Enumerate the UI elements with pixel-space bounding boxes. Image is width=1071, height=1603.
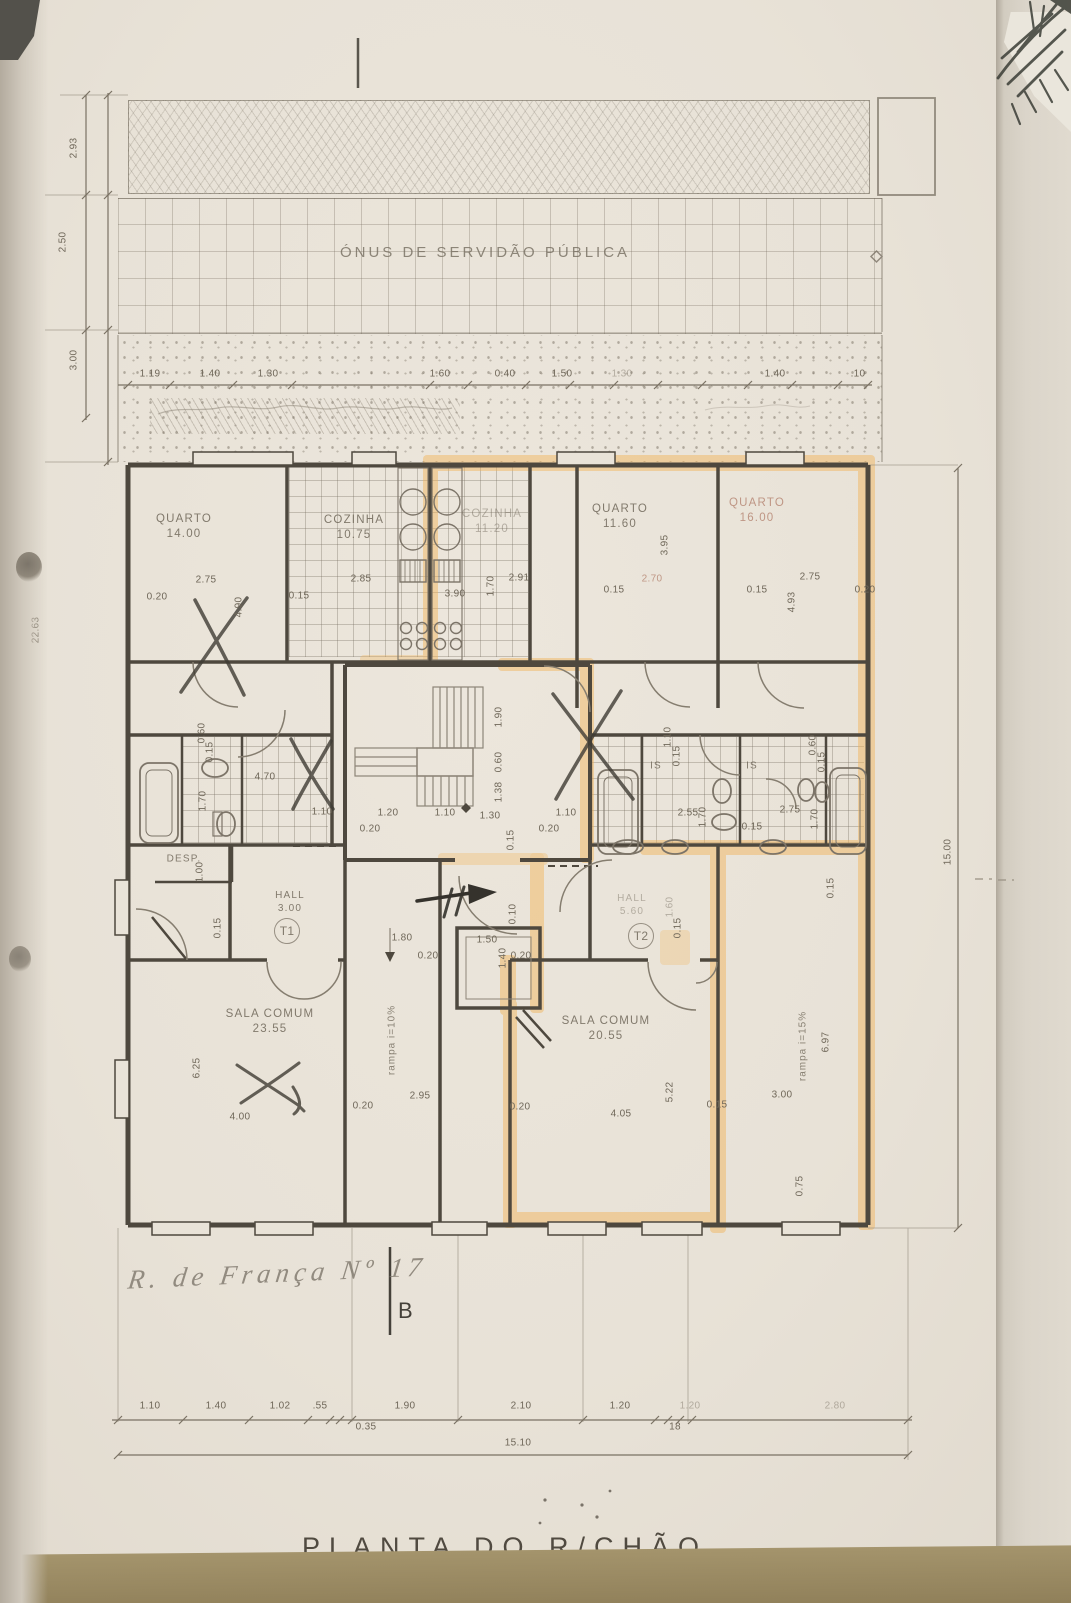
dimension-label: 0.20 <box>511 950 532 963</box>
dimension-label: 4.00 <box>230 1111 251 1124</box>
dimension-label: 0.20 <box>147 591 168 604</box>
pencil-arrow <box>417 884 497 917</box>
faint-scribble-right <box>705 405 810 410</box>
room-label: HALL 3.00 <box>275 889 305 915</box>
dimension-label: 5.22 <box>664 1082 677 1103</box>
dimension-label: 15.10 <box>505 1437 532 1450</box>
dimension-label: 1.19 <box>140 368 161 381</box>
dimension-label: 2.85 <box>351 573 372 586</box>
dimension-label: 2.93 <box>68 138 81 159</box>
room-label: QUARTO 16.00 <box>729 496 785 526</box>
dimension-label: 1.40 <box>206 1400 227 1413</box>
dimension-label: 0.15 <box>505 830 518 851</box>
plant-sketch <box>998 0 1071 124</box>
ramp-note: rampa i=15% <box>797 1011 810 1081</box>
dimension-label: 1.30 <box>258 368 279 381</box>
dimension-label: 2.50 <box>57 232 70 253</box>
dimension-label: 1.60 <box>664 897 677 918</box>
dimension-label: 2.70 <box>642 573 663 586</box>
dimension-label: 1.70 <box>697 807 710 828</box>
dimension-label: 0.15 <box>289 590 310 603</box>
dimension-label: 3.00 <box>772 1089 793 1102</box>
dimension-label: 3.90 <box>445 588 466 601</box>
table-edge-strip <box>0 1545 1071 1603</box>
dimension-label: 1.90 <box>493 707 506 728</box>
dimension-label: 6.97 <box>820 1032 833 1053</box>
door-swings <box>136 662 804 1010</box>
ramp-note: rampa i=10% <box>386 1005 399 1075</box>
dimension-label: 0.15 <box>204 742 217 763</box>
dimension-label: 1.00 <box>194 862 207 883</box>
dimension-label: 18 <box>669 1421 681 1434</box>
dimension-label: 4.90 <box>233 597 246 618</box>
dimension-label: 1.10 <box>140 1400 161 1413</box>
dimension-label: 1.40 <box>765 368 786 381</box>
faint-handwriting-scribble <box>158 406 452 414</box>
room-label: IS <box>746 760 758 773</box>
dimension-label: 1.70 <box>485 576 498 597</box>
dimension-label: 2.75 <box>800 571 821 584</box>
dimension-label: 1.20 <box>680 1400 701 1413</box>
dimension-label: 1.70 <box>197 791 210 812</box>
dimension-label: 1.20 <box>378 807 399 820</box>
unit-badge: T2 <box>628 923 654 949</box>
dimension-label: 1.38 <box>493 782 506 803</box>
dimension-label: 1.90 <box>395 1400 416 1413</box>
dimension-label: 0.20 <box>855 584 876 597</box>
room-label: SALA COMUM 23.55 <box>226 1007 315 1037</box>
room-label: QUARTO 14.00 <box>156 512 212 542</box>
dimension-label: 2.10 <box>511 1400 532 1413</box>
dimension-label: 0.15 <box>707 1099 728 1112</box>
dimension-label: 0.20 <box>418 950 439 963</box>
dimension-label: 1.10 <box>556 807 577 820</box>
dimension-label: 0.20 <box>510 1101 531 1114</box>
ink-specks <box>539 1490 612 1525</box>
dimension-label: 4.93 <box>786 592 799 613</box>
dimension-label: 0.35 <box>356 1421 377 1434</box>
room-label: COZINHA 11.20 <box>462 507 522 537</box>
dimension-label: 0.20 <box>360 823 381 836</box>
dimension-label: 1.50 <box>477 934 498 947</box>
dimension-label: 0.15 <box>671 746 684 767</box>
dimension-label: 2.91 <box>509 572 530 585</box>
dimension-label: 2.55 <box>678 807 699 820</box>
section-marker-label: B <box>398 1298 413 1324</box>
dimension-label: 1.80 <box>392 932 413 945</box>
dimension-label: 0.15 <box>742 821 763 834</box>
dimension-label: 4.05 <box>611 1108 632 1121</box>
dimension-label: 1.10 <box>662 727 675 748</box>
dimension-label: 0.40 <box>495 368 516 381</box>
dimension-label: 2.75 <box>196 574 217 587</box>
dimension-label: 6.25 <box>191 1058 204 1079</box>
dimension-label: 3.00 <box>68 350 81 371</box>
dimension-label: 15.00 <box>942 839 955 866</box>
dimension-label: 1.30 <box>480 810 501 823</box>
hole-punch-smudge <box>16 552 42 582</box>
dimension-label: 1.70 <box>809 809 822 830</box>
dimension-label: 1.20 <box>610 1400 631 1413</box>
dimension-label: 1.10 <box>312 806 333 819</box>
dimension-label: 0.60 <box>196 723 209 744</box>
dimension-label: 0.20 <box>539 823 560 836</box>
plumbing-fixtures <box>140 759 866 854</box>
room-label: SALA COMUM 20.55 <box>562 1014 651 1044</box>
dimension-label: 1.10 <box>435 807 456 820</box>
dimension-label: .55 <box>313 1400 328 1413</box>
room-label: HALL 5.60 <box>617 892 647 918</box>
dimension-label: 0.10 <box>507 904 520 925</box>
dimension-label: 3.95 <box>659 535 672 556</box>
dimension-label: 0.15 <box>816 752 829 773</box>
dimension-label: 1.60 <box>430 368 451 381</box>
dimension-label: 1.40 <box>497 948 510 969</box>
floor-plan-linework <box>0 0 1071 1603</box>
room-label: QUARTO 11.60 <box>592 502 648 532</box>
dimension-label: 2.75 <box>780 804 801 817</box>
dimension-label: 0.15 <box>604 584 625 597</box>
dimension-label: 0.15 <box>212 918 225 939</box>
dimension-label: 4.70 <box>255 771 276 784</box>
dimension-label: 1.30 <box>612 368 633 381</box>
dimension-label: 0.60 <box>493 752 506 773</box>
room-label: IS <box>650 760 662 773</box>
dimension-label: 1.02 <box>270 1400 291 1413</box>
dimension-label: 0.15 <box>672 918 685 939</box>
dimension-label: 2.95 <box>410 1090 431 1103</box>
scanned-floor-plan-photo: ÓNUS DE SERVIDÃO PÚBLICA QUARTO 14.00COZ… <box>0 0 1071 1603</box>
dimension-label: 1.40 <box>200 368 221 381</box>
dimension-label: .10 <box>851 368 866 381</box>
page-left-edge-shadow <box>0 0 48 1603</box>
servitude-band-label: ÓNUS DE SERVIDÃO PÚBLICA <box>285 244 685 261</box>
room-label: COZINHA 10.75 <box>324 513 384 543</box>
dimension-label: 2.80 <box>825 1400 846 1413</box>
unit-badge: T1 <box>274 918 300 944</box>
dimension-label: 0.75 <box>794 1176 807 1197</box>
hole-punch-smudge <box>9 946 31 972</box>
dimension-label: 0.20 <box>353 1100 374 1113</box>
dimension-label: 1.50 <box>552 368 573 381</box>
dimension-label: 0.15 <box>825 878 838 899</box>
dimension-label: 0.15 <box>747 584 768 597</box>
